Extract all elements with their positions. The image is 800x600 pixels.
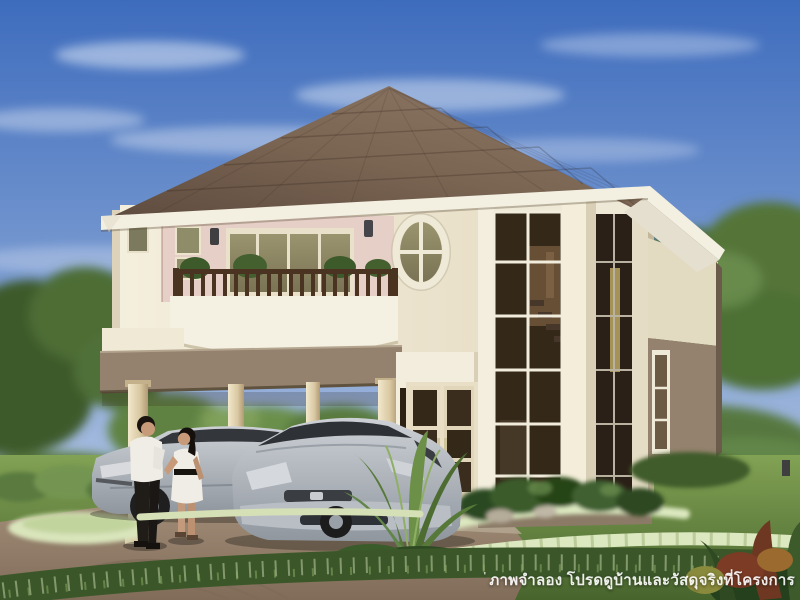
house-rendering: 'ภาพจำลอง โปรดดูบ้านและวัสดุจริงที่โครงก… bbox=[0, 0, 800, 600]
scene-canvas bbox=[0, 0, 800, 600]
right-wing-window bbox=[652, 350, 670, 454]
watermark-caption: ภาพจำลอง โปรดดูบ้านและวัสดุจริงที่โครงกา… bbox=[489, 572, 795, 589]
wall-lamp-right bbox=[364, 220, 373, 237]
grille-emblem bbox=[310, 492, 323, 500]
right-wing bbox=[648, 238, 722, 466]
watermark-text: 'ภาพจำลอง โปรดดูบ้านและวัสดุจริงที่โครงก… bbox=[484, 568, 795, 592]
oval-window bbox=[392, 214, 450, 290]
bay-chamfer-glazing bbox=[596, 214, 632, 502]
wall-lamp-left bbox=[210, 228, 219, 245]
watermark-mark: ' bbox=[484, 571, 487, 582]
bay-front-glazing bbox=[494, 212, 568, 502]
garden-lamp bbox=[782, 460, 790, 476]
